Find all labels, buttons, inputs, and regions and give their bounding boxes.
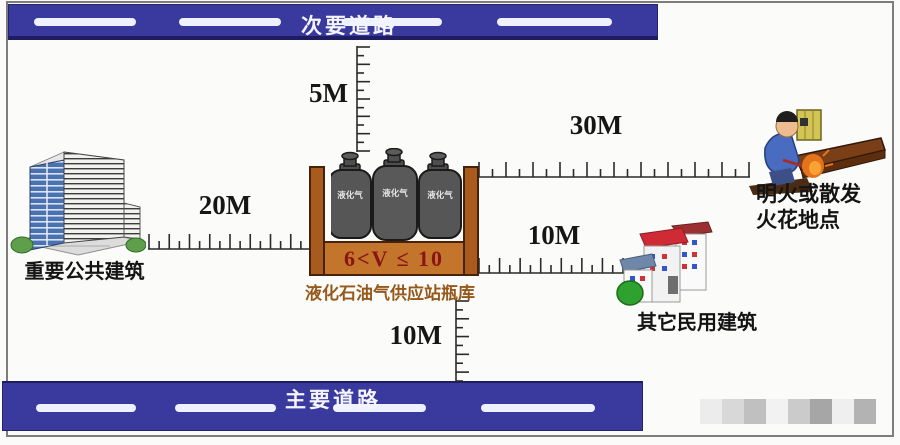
gas-cylinder: 液化气 <box>419 153 461 239</box>
civilian-building-label: 其它民用建筑 <box>612 306 782 335</box>
distance-30m: 30M <box>548 110 644 141</box>
watermark-block <box>854 399 876 424</box>
primary-road-label: 主要道路 <box>263 384 403 414</box>
lpg-safety-distance-diagram: 次要道路 主要道路 5M 20M 30M 10M 10M <box>0 0 900 445</box>
svg-text:液化气: 液化气 <box>382 188 408 198</box>
watermark-block <box>766 399 788 424</box>
distance-20m: 20M <box>182 190 268 221</box>
ruler-20m <box>148 227 312 251</box>
station-name-label: 液化石油气供应站瓶库 <box>283 279 497 304</box>
gas-cylinder: 液化气 <box>331 153 371 239</box>
secondary-road-label: 次要道路 <box>284 10 414 40</box>
watermark-block <box>700 399 722 424</box>
lane-dash <box>36 404 136 412</box>
volume-range-label: 6<V ≤ 10 <box>344 246 444 272</box>
public-building-illustration <box>10 145 146 259</box>
gas-cylinder: 液化气 <box>373 149 417 241</box>
lane-dash <box>481 404 595 412</box>
bush <box>617 281 643 305</box>
secondary-road-band: 次要道路 <box>8 4 658 40</box>
ruler-10m-right <box>478 251 624 275</box>
watermark-block <box>722 399 744 424</box>
lane-dash <box>34 18 136 26</box>
flame-site-label: 明火或散发 火花地点 <box>756 182 861 234</box>
svg-text:液化气: 液化气 <box>337 190 363 200</box>
watermark-block <box>744 399 766 424</box>
ruler-30m <box>478 155 750 179</box>
svg-text:液化气: 液化气 <box>427 190 453 200</box>
watermark-mosaic <box>700 399 876 424</box>
lane-dash <box>175 404 276 412</box>
station-container-base: 6<V ≤ 10 <box>309 241 479 276</box>
distance-5m: 5M <box>292 78 348 109</box>
civilian-building-illustration <box>616 220 720 308</box>
watermark-block <box>810 399 832 424</box>
worker-body <box>765 133 799 174</box>
watermark-block <box>832 399 854 424</box>
public-building-label: 重要公共建筑 <box>2 255 167 284</box>
ruler-5m <box>355 46 375 152</box>
distance-10m-bottom: 10M <box>376 320 442 351</box>
station-container-wall-left <box>309 166 325 276</box>
gas-cylinders: 液化气 液化气 液化气 <box>331 148 463 244</box>
lane-dash <box>179 18 281 26</box>
primary-road-band: 主要道路 <box>2 381 643 431</box>
watermark-block <box>788 399 810 424</box>
ruler-10m-bottom <box>454 300 474 382</box>
distance-10m-right: 10M <box>512 220 596 251</box>
station-container-wall-right <box>463 166 479 276</box>
lane-dash <box>497 18 612 26</box>
